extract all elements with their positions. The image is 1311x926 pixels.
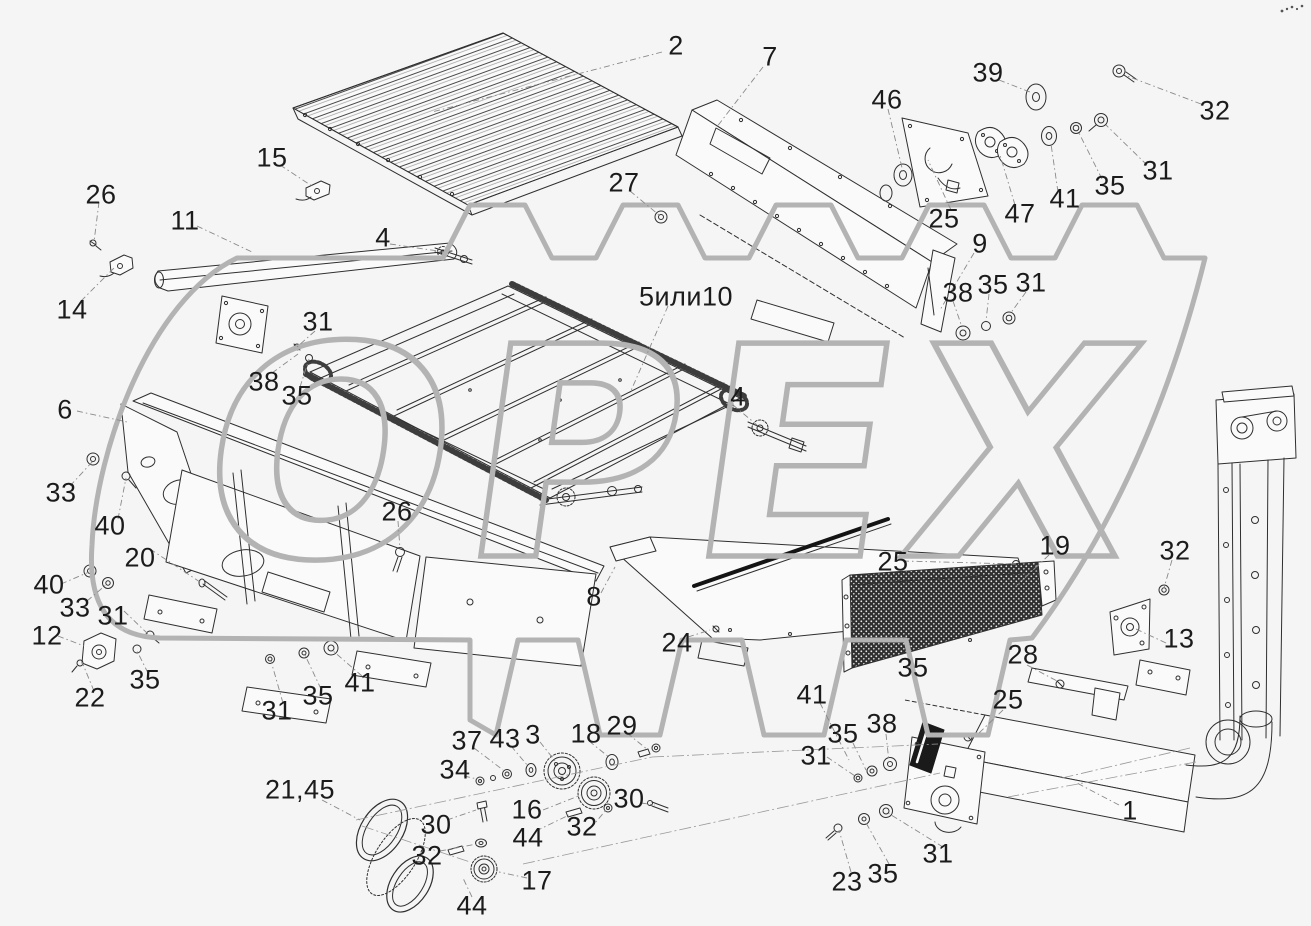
leader-line: [839, 830, 851, 872]
leader-line: [70, 461, 93, 486]
leader-line: [999, 80, 1030, 92]
leader-line: [474, 748, 503, 770]
leader-line: [499, 872, 527, 878]
leader-line: [888, 109, 903, 172]
leader-line: [58, 636, 84, 646]
hinge-bracket-12: [72, 633, 116, 672]
leader-line: [137, 651, 148, 673]
sieve-panel-2: [293, 33, 682, 215]
leader-line: [1106, 125, 1147, 165]
washer-39: [1026, 84, 1046, 110]
leader-line: [322, 800, 360, 820]
bolt-32-top-right: [1113, 65, 1136, 82]
exploded-parts-drawing: ОРЕХ: [0, 0, 1311, 926]
screw-26-top: [90, 240, 101, 250]
leader-line: [447, 810, 476, 820]
leader-line: [81, 266, 116, 301]
leader-line: [464, 776, 477, 779]
watermark-text-group: ОРЕХ: [182, 286, 1173, 625]
clamp-bracket-15: [296, 181, 330, 200]
leader-line: [1127, 76, 1201, 104]
leader-line: [536, 815, 569, 831]
leader-line: [1079, 133, 1102, 179]
leader-line: [865, 821, 889, 864]
leader-line: [197, 226, 252, 252]
nut-35-top: [1071, 123, 1082, 134]
leader-line: [1051, 144, 1058, 192]
clamp-bracket-14: [100, 255, 133, 277]
sprocket-cluster: [448, 744, 668, 882]
v-belt-21-45: [346, 790, 443, 920]
leader-line: [118, 478, 126, 519]
washer-41-top: [1042, 127, 1057, 146]
leader-line: [590, 810, 606, 829]
leader-line: [463, 878, 472, 897]
corner-specks: [1281, 5, 1304, 13]
diagram-page: ОРЕХ 2739463231354147259271526111445или1…: [0, 0, 1311, 926]
leader-line: [305, 655, 321, 689]
watermark-text: ОРЕХ: [182, 286, 1173, 625]
leader-line: [853, 743, 866, 770]
leader-line: [543, 795, 581, 810]
elevator-column-13: [1216, 386, 1296, 740]
beam-fasteners: [826, 758, 897, 841]
leader-line: [511, 746, 528, 766]
axis-line: [523, 773, 940, 864]
leader-line: [280, 165, 312, 186]
leader-line: [827, 757, 855, 776]
leader-line: [589, 741, 610, 758]
leader-line: [888, 813, 943, 847]
bolt-31-top: [1089, 114, 1108, 132]
leader-line: [1164, 560, 1172, 588]
ring-27: [655, 211, 667, 223]
bearing-bracket-46: [880, 118, 988, 207]
leader-line: [94, 202, 99, 242]
axis-line: [652, 744, 938, 757]
